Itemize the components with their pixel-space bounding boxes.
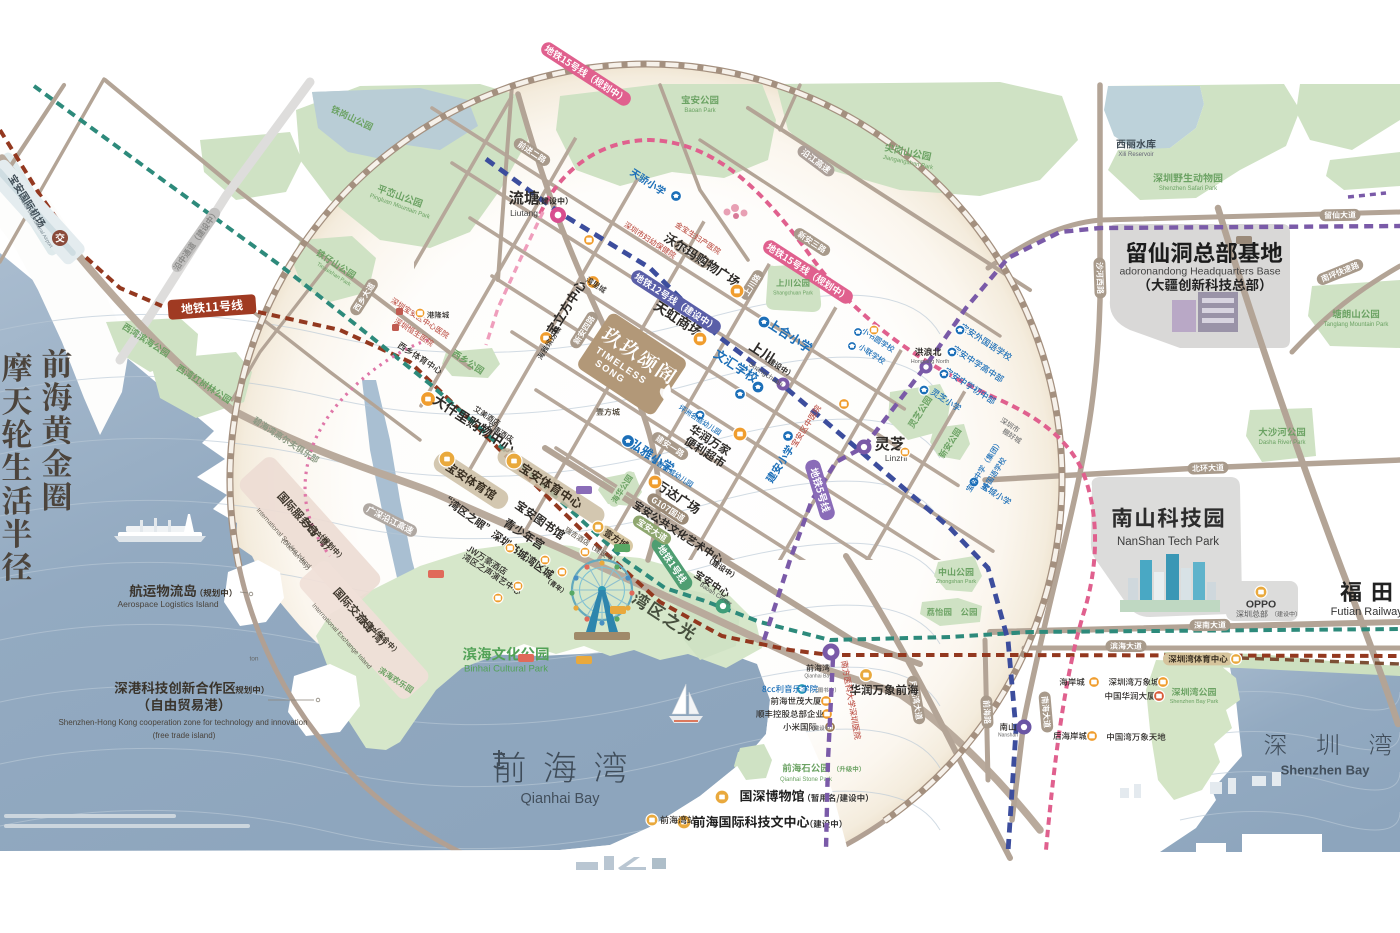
svg-text:Shenzhen Bay Park: Shenzhen Bay Park (1170, 699, 1219, 705)
svg-text:Qianhai Bay: Qianhai Bay (521, 791, 601, 807)
svg-text:Binhai Cultural Park: Binhai Cultural Park (464, 663, 548, 674)
svg-text:Futian Railway Stat: Futian Railway Stat (1331, 606, 1400, 618)
svg-text:ton: ton (249, 655, 258, 662)
svg-text:Aerospace Logistics Island: Aerospace Logistics Island (117, 599, 218, 609)
svg-text:Tanglang Mountain Park: Tanglang Mountain Park (1324, 322, 1390, 328)
svg-text:Zhongshan Park: Zhongshan Park (936, 579, 977, 585)
svg-text:NanShan Tech Park: NanShan Tech Park (1117, 536, 1219, 548)
svg-text:Honglang North: Honglang North (911, 359, 950, 365)
svg-text:Shangchuan Park: Shangchuan Park (773, 291, 813, 297)
svg-text:Qianhai Bay: Qianhai Bay (804, 674, 832, 680)
svg-text:Shenzhen Bay: Shenzhen Bay (1281, 762, 1371, 777)
svg-text:Liutang: Liutang (510, 208, 538, 218)
svg-text:Qianhai Stone Park: Qianhai Stone Park (780, 777, 833, 783)
svg-text:Baoan Park: Baoan Park (684, 108, 716, 114)
svg-text:Shenzhen-Hong Kong cooperation: Shenzhen-Hong Kong cooperation zone for … (58, 718, 307, 727)
svg-text:Dasha River Park: Dasha River Park (1258, 440, 1306, 446)
svg-text:Nanshan: Nanshan (998, 733, 1018, 739)
svg-text:Xili Reservoir: Xili Reservoir (1118, 152, 1153, 158)
svg-text:(free trade island): (free trade island) (153, 731, 216, 740)
svg-text:adoronandong Headquarters Base: adoronandong Headquarters Base (1119, 266, 1280, 278)
svg-text:Shenzhen Safari Park: Shenzhen Safari Park (1159, 186, 1218, 192)
svg-text:OPPO: OPPO (1246, 599, 1276, 611)
